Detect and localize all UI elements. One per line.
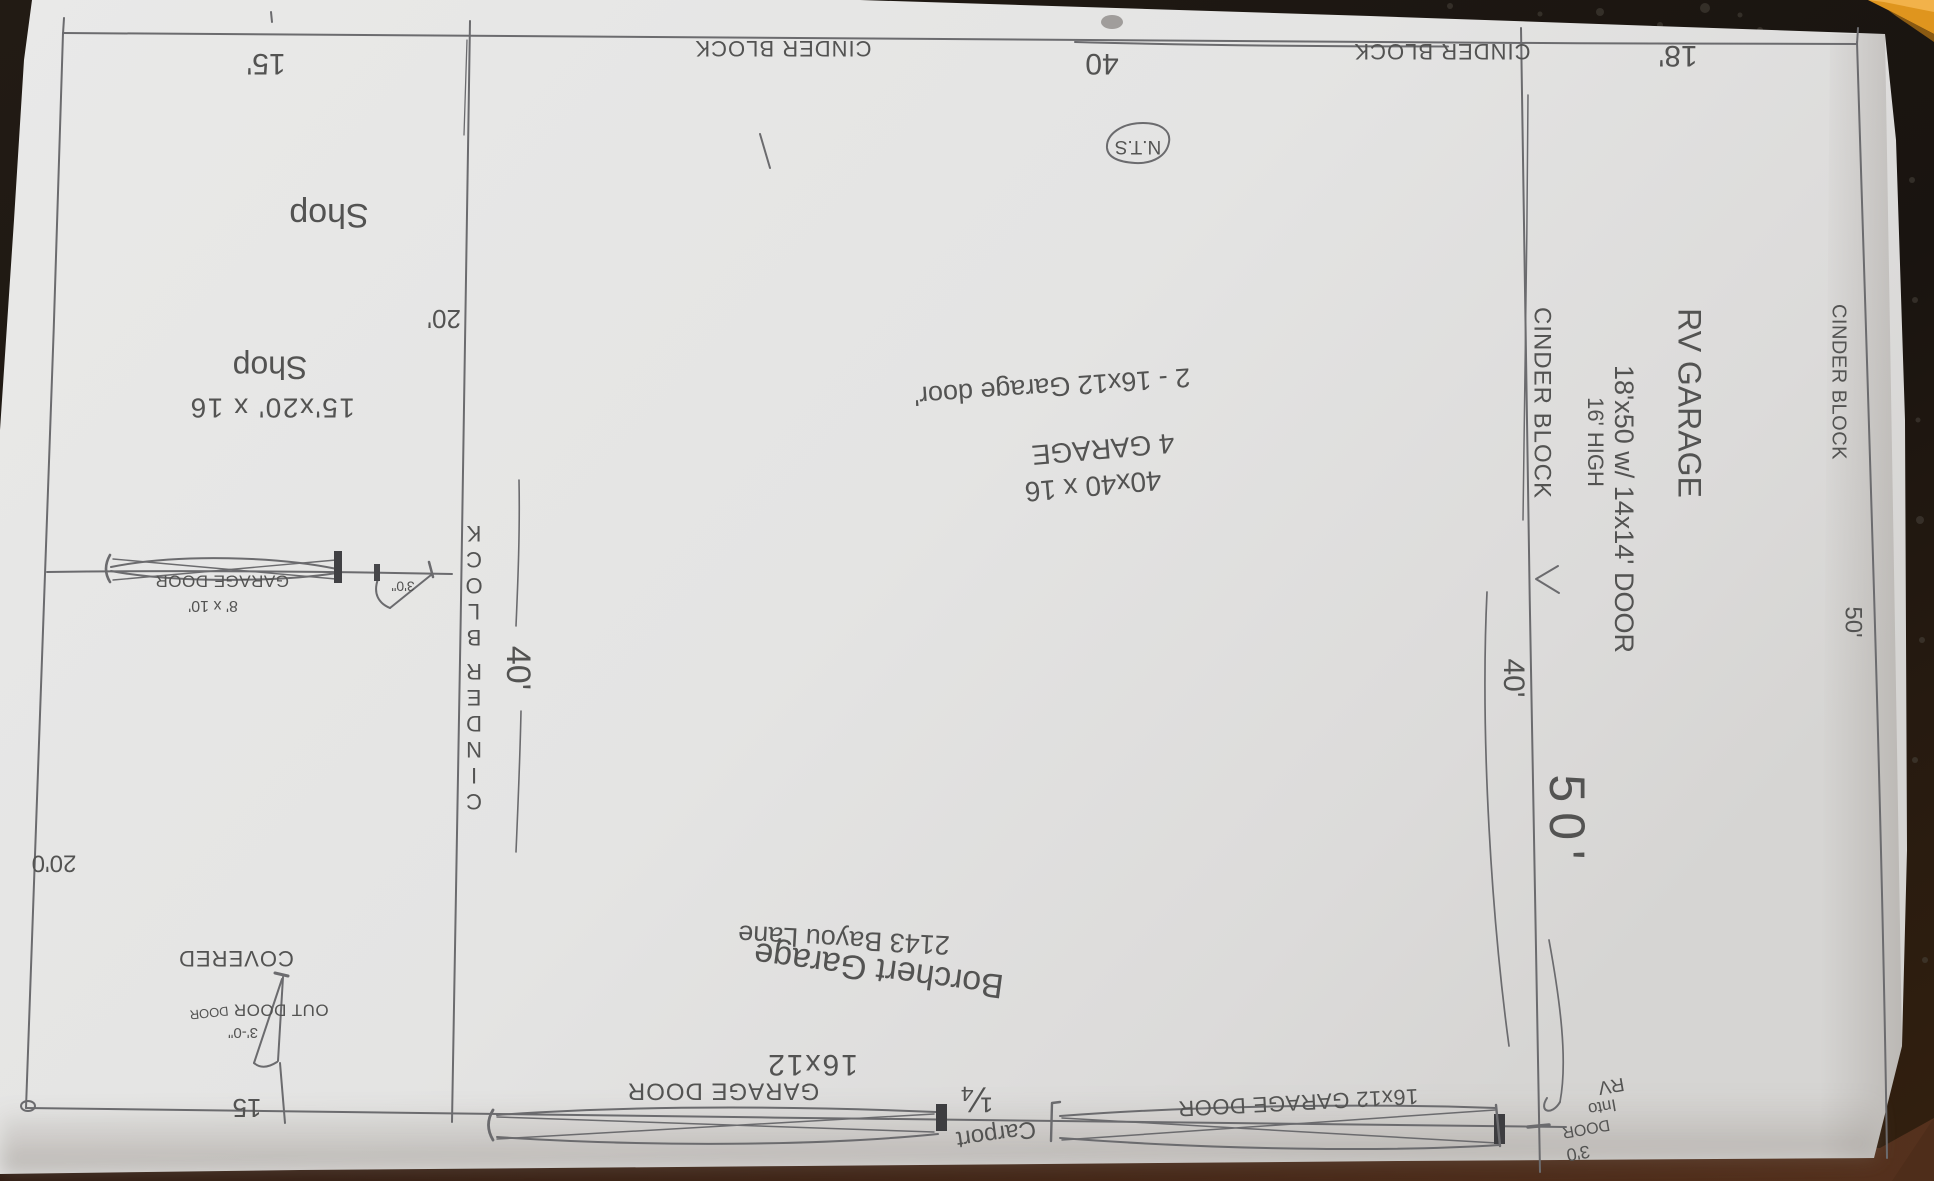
svg-text:N.T.S: N.T.S xyxy=(1115,136,1161,157)
svg-text:COVERED: COVERED xyxy=(178,946,294,971)
svg-text:N: N xyxy=(466,737,482,762)
svg-text:15': 15' xyxy=(246,47,285,80)
svg-text:CINDER BLOCK: CINDER BLOCK xyxy=(694,36,871,61)
svg-text:K: K xyxy=(466,521,481,546)
svg-text:3'-0": 3'-0" xyxy=(228,1024,258,1041)
svg-text:RV GARAGE: RV GARAGE xyxy=(1672,308,1708,498)
svg-text:50': 50' xyxy=(1539,774,1595,869)
svg-text:R: R xyxy=(466,659,482,684)
svg-text:CINDER BLOCK: CINDER BLOCK xyxy=(1529,307,1556,499)
svg-text:18'x50 w/ 14x14' DOOR: 18'x50 w/ 14x14' DOOR xyxy=(1609,365,1639,653)
svg-text:GARAGE DOOR: GARAGE DOOR xyxy=(155,572,289,591)
svg-text:8' x 10': 8' x 10' xyxy=(188,597,238,614)
svg-text:B: B xyxy=(467,625,482,650)
svg-text:50': 50' xyxy=(1840,606,1867,637)
svg-text:E: E xyxy=(467,685,482,710)
svg-text:¼: ¼ xyxy=(961,1079,992,1120)
svg-text:D: D xyxy=(466,711,482,736)
svg-text:15: 15 xyxy=(233,1093,262,1123)
svg-text:40': 40' xyxy=(499,646,537,690)
svg-text:OUT DOOR: OUT DOOR xyxy=(233,1001,328,1020)
svg-text:CINDER BLOCK: CINDER BLOCK xyxy=(1353,39,1530,64)
svg-text:3'0": 3'0" xyxy=(391,578,414,594)
svg-text:15'x20' x 16: 15'x20' x 16 xyxy=(189,393,355,424)
svg-text:18': 18' xyxy=(1658,39,1697,72)
svg-text:40': 40' xyxy=(1497,658,1530,697)
svg-text:20'0: 20'0 xyxy=(32,850,77,877)
svg-text:C: C xyxy=(466,789,482,814)
svg-text:20': 20' xyxy=(427,304,461,334)
svg-text:I: I xyxy=(471,763,477,788)
svg-text:GARAGE DOOR: GARAGE DOOR xyxy=(627,1078,819,1105)
svg-text:L: L xyxy=(468,599,480,624)
svg-text:40: 40 xyxy=(1085,47,1118,80)
svg-text:16' HIGH: 16' HIGH xyxy=(1583,397,1608,487)
svg-text:16x12: 16x12 xyxy=(766,1048,858,1081)
svg-text:Shop: Shop xyxy=(233,350,308,386)
svg-text:Shop: Shop xyxy=(289,196,368,234)
svg-text:CINDER BLOCK: CINDER BLOCK xyxy=(1828,304,1850,460)
svg-text:O: O xyxy=(465,573,482,598)
svg-text:3'0: 3'0 xyxy=(1565,1141,1592,1165)
svg-text:C: C xyxy=(466,547,482,572)
